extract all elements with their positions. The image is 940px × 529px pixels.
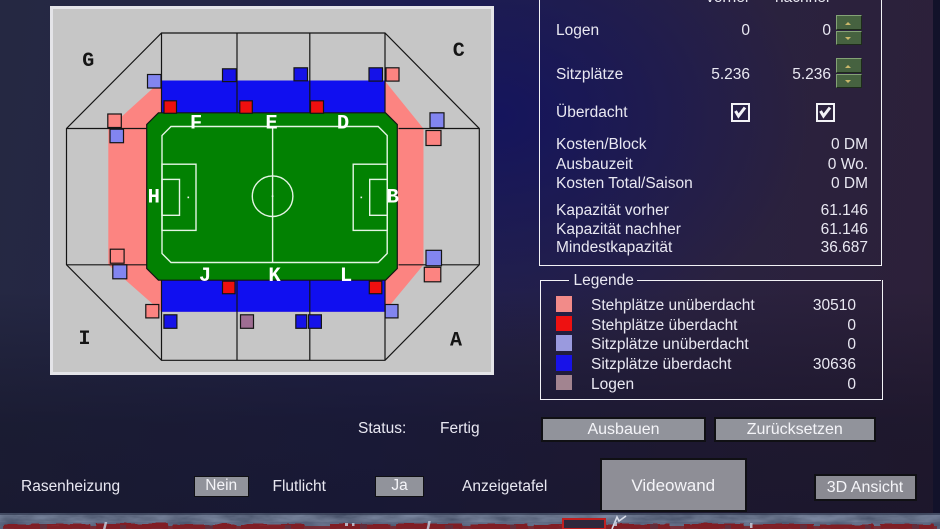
svg-text:A: A xyxy=(450,330,462,353)
svg-text:B: B xyxy=(387,186,399,209)
svg-text:C: C xyxy=(453,40,465,63)
svg-text:K: K xyxy=(268,265,281,288)
svg-text:E: E xyxy=(265,112,277,135)
svg-text:H: H xyxy=(148,186,160,209)
svg-text:L: L xyxy=(340,265,352,288)
svg-text:J: J xyxy=(199,265,211,288)
svg-text:G: G xyxy=(82,50,94,73)
svg-text:I: I xyxy=(78,328,90,351)
svg-text:D: D xyxy=(337,112,349,135)
svg-text:F: F xyxy=(190,112,202,135)
